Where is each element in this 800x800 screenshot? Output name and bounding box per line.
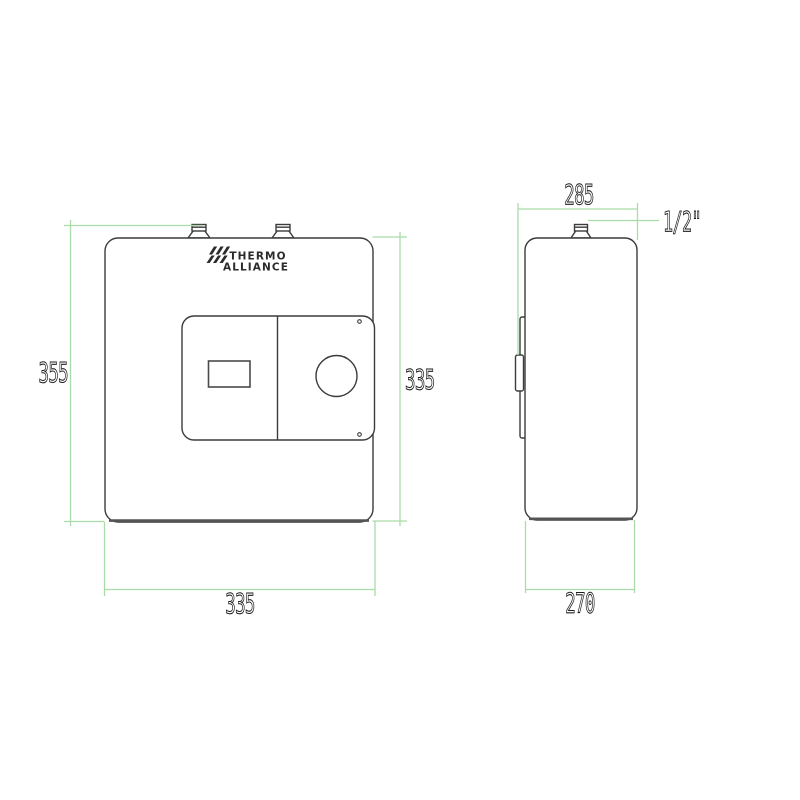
dim-label-connection-size: 1/2"	[663, 207, 701, 239]
control-panel	[182, 316, 375, 440]
dim-label-depth-overall: 285	[564, 179, 593, 211]
dim-label-depth-body: 270	[565, 587, 594, 619]
dim-label-body-height: 335	[405, 364, 434, 396]
drawing-svg: THERMO ALLIANCE 355	[0, 0, 800, 800]
display-window	[209, 361, 251, 387]
dimension-connection-size: 1/2"	[588, 207, 701, 239]
side-knob-protrusion	[516, 355, 524, 391]
front-pipe-fitting-right	[272, 225, 294, 239]
panel-screw-bottom	[358, 433, 362, 437]
dimension-body-height: 335	[373, 232, 435, 526]
brand-name-line2: ALLIANCE	[223, 262, 289, 274]
panel-screw-top	[358, 320, 362, 324]
dimension-body-width: 335	[105, 521, 376, 621]
side-view	[516, 225, 638, 521]
dim-label-overall-height: 355	[39, 357, 68, 389]
technical-drawing-canvas: THERMO ALLIANCE 355	[0, 0, 800, 800]
front-view: THERMO ALLIANCE	[105, 225, 375, 523]
front-pipe-fitting-left	[188, 225, 210, 239]
side-body-outline	[525, 238, 637, 520]
dim-label-body-width: 335	[225, 588, 254, 620]
side-pipe-fitting	[571, 225, 591, 239]
dimension-depth-body: 270	[526, 520, 635, 620]
